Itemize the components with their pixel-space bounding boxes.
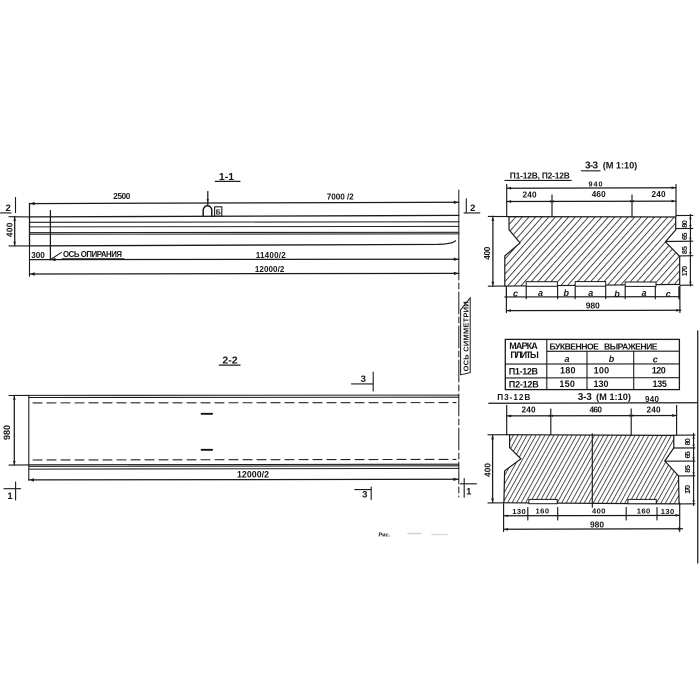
svg-text:П1-12В, П2-12В: П1-12В, П2-12В: [510, 170, 570, 180]
svg-text:400: 400: [6, 222, 15, 237]
svg-text:980: 980: [2, 425, 12, 440]
svg-text:400: 400: [592, 507, 606, 516]
svg-text:180: 180: [560, 366, 576, 376]
svg-text:Б: Б: [216, 209, 221, 216]
svg-text:(М 1:10): (М 1:10): [596, 392, 631, 402]
svg-text:460: 460: [592, 190, 606, 199]
svg-text:1: 1: [7, 491, 13, 502]
svg-text:БУКВЕННОЕ ВЫРАЖЕНИЕ: БУКВЕННОЕ ВЫРАЖЕНИЕ: [550, 342, 658, 352]
svg-text:c: c: [653, 355, 658, 365]
svg-text:П1-12В: П1-12В: [509, 366, 539, 376]
svg-text:240: 240: [652, 190, 666, 199]
svg-text:150: 150: [559, 379, 575, 389]
svg-text:980: 980: [586, 301, 600, 311]
svg-text:П3-12В: П3-12В: [497, 393, 530, 402]
svg-text:(М 1:10): (М 1:10): [603, 160, 638, 170]
svg-text:170: 170: [680, 266, 689, 277]
svg-text:c: c: [666, 289, 671, 299]
svg-text:12000/2: 12000/2: [237, 470, 269, 480]
svg-text:3: 3: [362, 490, 367, 501]
svg-text:3-3: 3-3: [585, 161, 598, 172]
svg-text:400: 400: [483, 246, 492, 259]
svg-text:100: 100: [594, 366, 610, 376]
svg-text:460: 460: [589, 406, 602, 415]
svg-text:940: 940: [589, 179, 603, 188]
svg-text:ОСЬ ОПИРАНИЯ: ОСЬ ОПИРАНИЯ: [63, 250, 122, 259]
svg-text:85: 85: [680, 246, 689, 254]
svg-text:80: 80: [680, 220, 689, 228]
svg-text:135: 135: [653, 379, 667, 389]
svg-text:400: 400: [483, 463, 492, 477]
svg-text:12000/2: 12000/2: [255, 265, 285, 274]
svg-text:a: a: [588, 288, 593, 298]
svg-text:85: 85: [683, 465, 692, 473]
svg-text:300: 300: [31, 251, 45, 260]
svg-text:a: a: [641, 288, 646, 298]
svg-text:120: 120: [652, 366, 666, 376]
svg-text:980: 980: [590, 520, 604, 530]
svg-text:130: 130: [512, 507, 526, 516]
svg-text:130: 130: [661, 507, 675, 516]
svg-text:1: 1: [466, 486, 472, 497]
svg-text:c: c: [513, 288, 518, 298]
svg-text:7000 /2: 7000 /2: [327, 192, 354, 201]
svg-text:130: 130: [594, 379, 609, 389]
svg-text:80: 80: [683, 438, 692, 445]
svg-text:65: 65: [683, 451, 692, 458]
svg-text:b: b: [609, 354, 615, 364]
svg-text:11400/2: 11400/2: [256, 251, 287, 260]
svg-text:65: 65: [680, 233, 689, 241]
svg-text:240: 240: [522, 406, 536, 415]
svg-text:ПЛИТЫ: ПЛИТЫ: [510, 350, 539, 360]
svg-text:160: 160: [637, 507, 651, 516]
svg-text:160: 160: [536, 507, 550, 516]
svg-text:a: a: [564, 354, 569, 364]
svg-text:a: a: [538, 288, 543, 298]
svg-text:ОСЬ СИММЕТРИИ: ОСЬ СИММЕТРИИ: [461, 301, 470, 371]
svg-text:b: b: [564, 288, 570, 298]
svg-text:240: 240: [647, 406, 661, 415]
svg-text:170: 170: [683, 485, 692, 494]
svg-text:Рис.: Рис.: [379, 533, 391, 539]
svg-text:П2-12В: П2-12В: [509, 379, 540, 389]
svg-text:b: b: [614, 289, 620, 299]
svg-text:2500: 2500: [113, 192, 130, 201]
svg-text:240: 240: [523, 190, 537, 199]
svg-text:3-3: 3-3: [578, 392, 592, 403]
